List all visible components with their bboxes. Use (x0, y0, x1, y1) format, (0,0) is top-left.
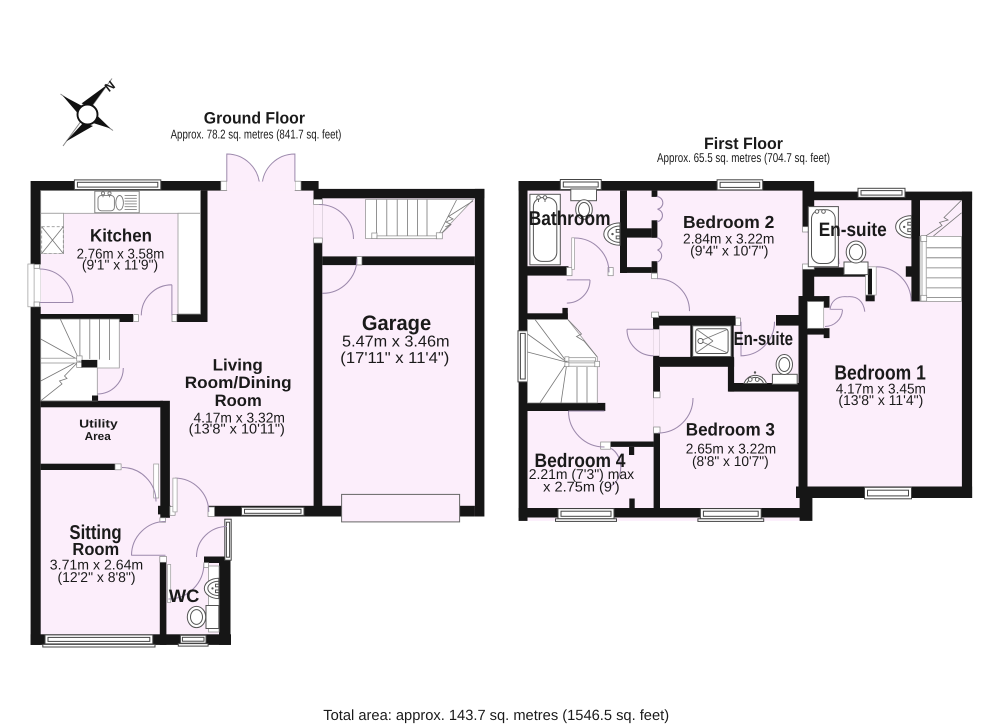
svg-text:x 2.75m (9'): x 2.75m (9') (543, 480, 620, 496)
svg-text:Bedroom 2: Bedroom 2 (683, 212, 775, 232)
svg-text:Utility: Utility (79, 418, 118, 430)
svg-text:Approx. 65.5 sq. metres (704.7: Approx. 65.5 sq. metres (704.7 sq. feet) (657, 150, 830, 165)
svg-text:Bathroom: Bathroom (529, 208, 611, 230)
svg-text:Total area: approx. 143.7 sq.: Total area: approx. 143.7 sq. metres (15… (323, 708, 669, 724)
svg-text:Kitchen: Kitchen (90, 226, 152, 246)
svg-text:Garage: Garage (362, 312, 431, 335)
svg-text:Room/Dining: Room/Dining (185, 374, 292, 392)
svg-text:Room: Room (215, 392, 262, 410)
svg-text:5.47m x 3.46m: 5.47m x 3.46m (342, 334, 450, 351)
svg-text:WC: WC (169, 586, 200, 606)
svg-text:(13'8" x 11'4"): (13'8" x 11'4") (838, 393, 923, 409)
svg-text:(17'11" x 11'4"): (17'11" x 11'4") (340, 350, 449, 367)
svg-text:Ground Floor: Ground Floor (204, 110, 306, 128)
svg-text:(8'8" x 10'7"): (8'8" x 10'7") (692, 454, 769, 470)
svg-text:Area: Area (85, 431, 112, 443)
svg-text:(9'4" x 10'7"): (9'4" x 10'7") (690, 243, 768, 259)
svg-text:Approx. 78.2 sq. metres (841.7: Approx. 78.2 sq. metres (841.7 sq. feet) (171, 127, 342, 142)
svg-text:En-suite: En-suite (819, 219, 887, 241)
svg-text:Living: Living (213, 356, 263, 374)
svg-text:(9'1" x 11'9"): (9'1" x 11'9") (82, 258, 158, 274)
svg-text:(13'8" x 10'11"): (13'8" x 10'11") (189, 422, 285, 438)
svg-text:En-suite: En-suite (734, 329, 793, 350)
svg-text:(12'2" x 8'8"): (12'2" x 8'8") (58, 570, 136, 586)
svg-text:Bedroom 3: Bedroom 3 (686, 420, 775, 440)
svg-text:Room: Room (72, 539, 119, 559)
